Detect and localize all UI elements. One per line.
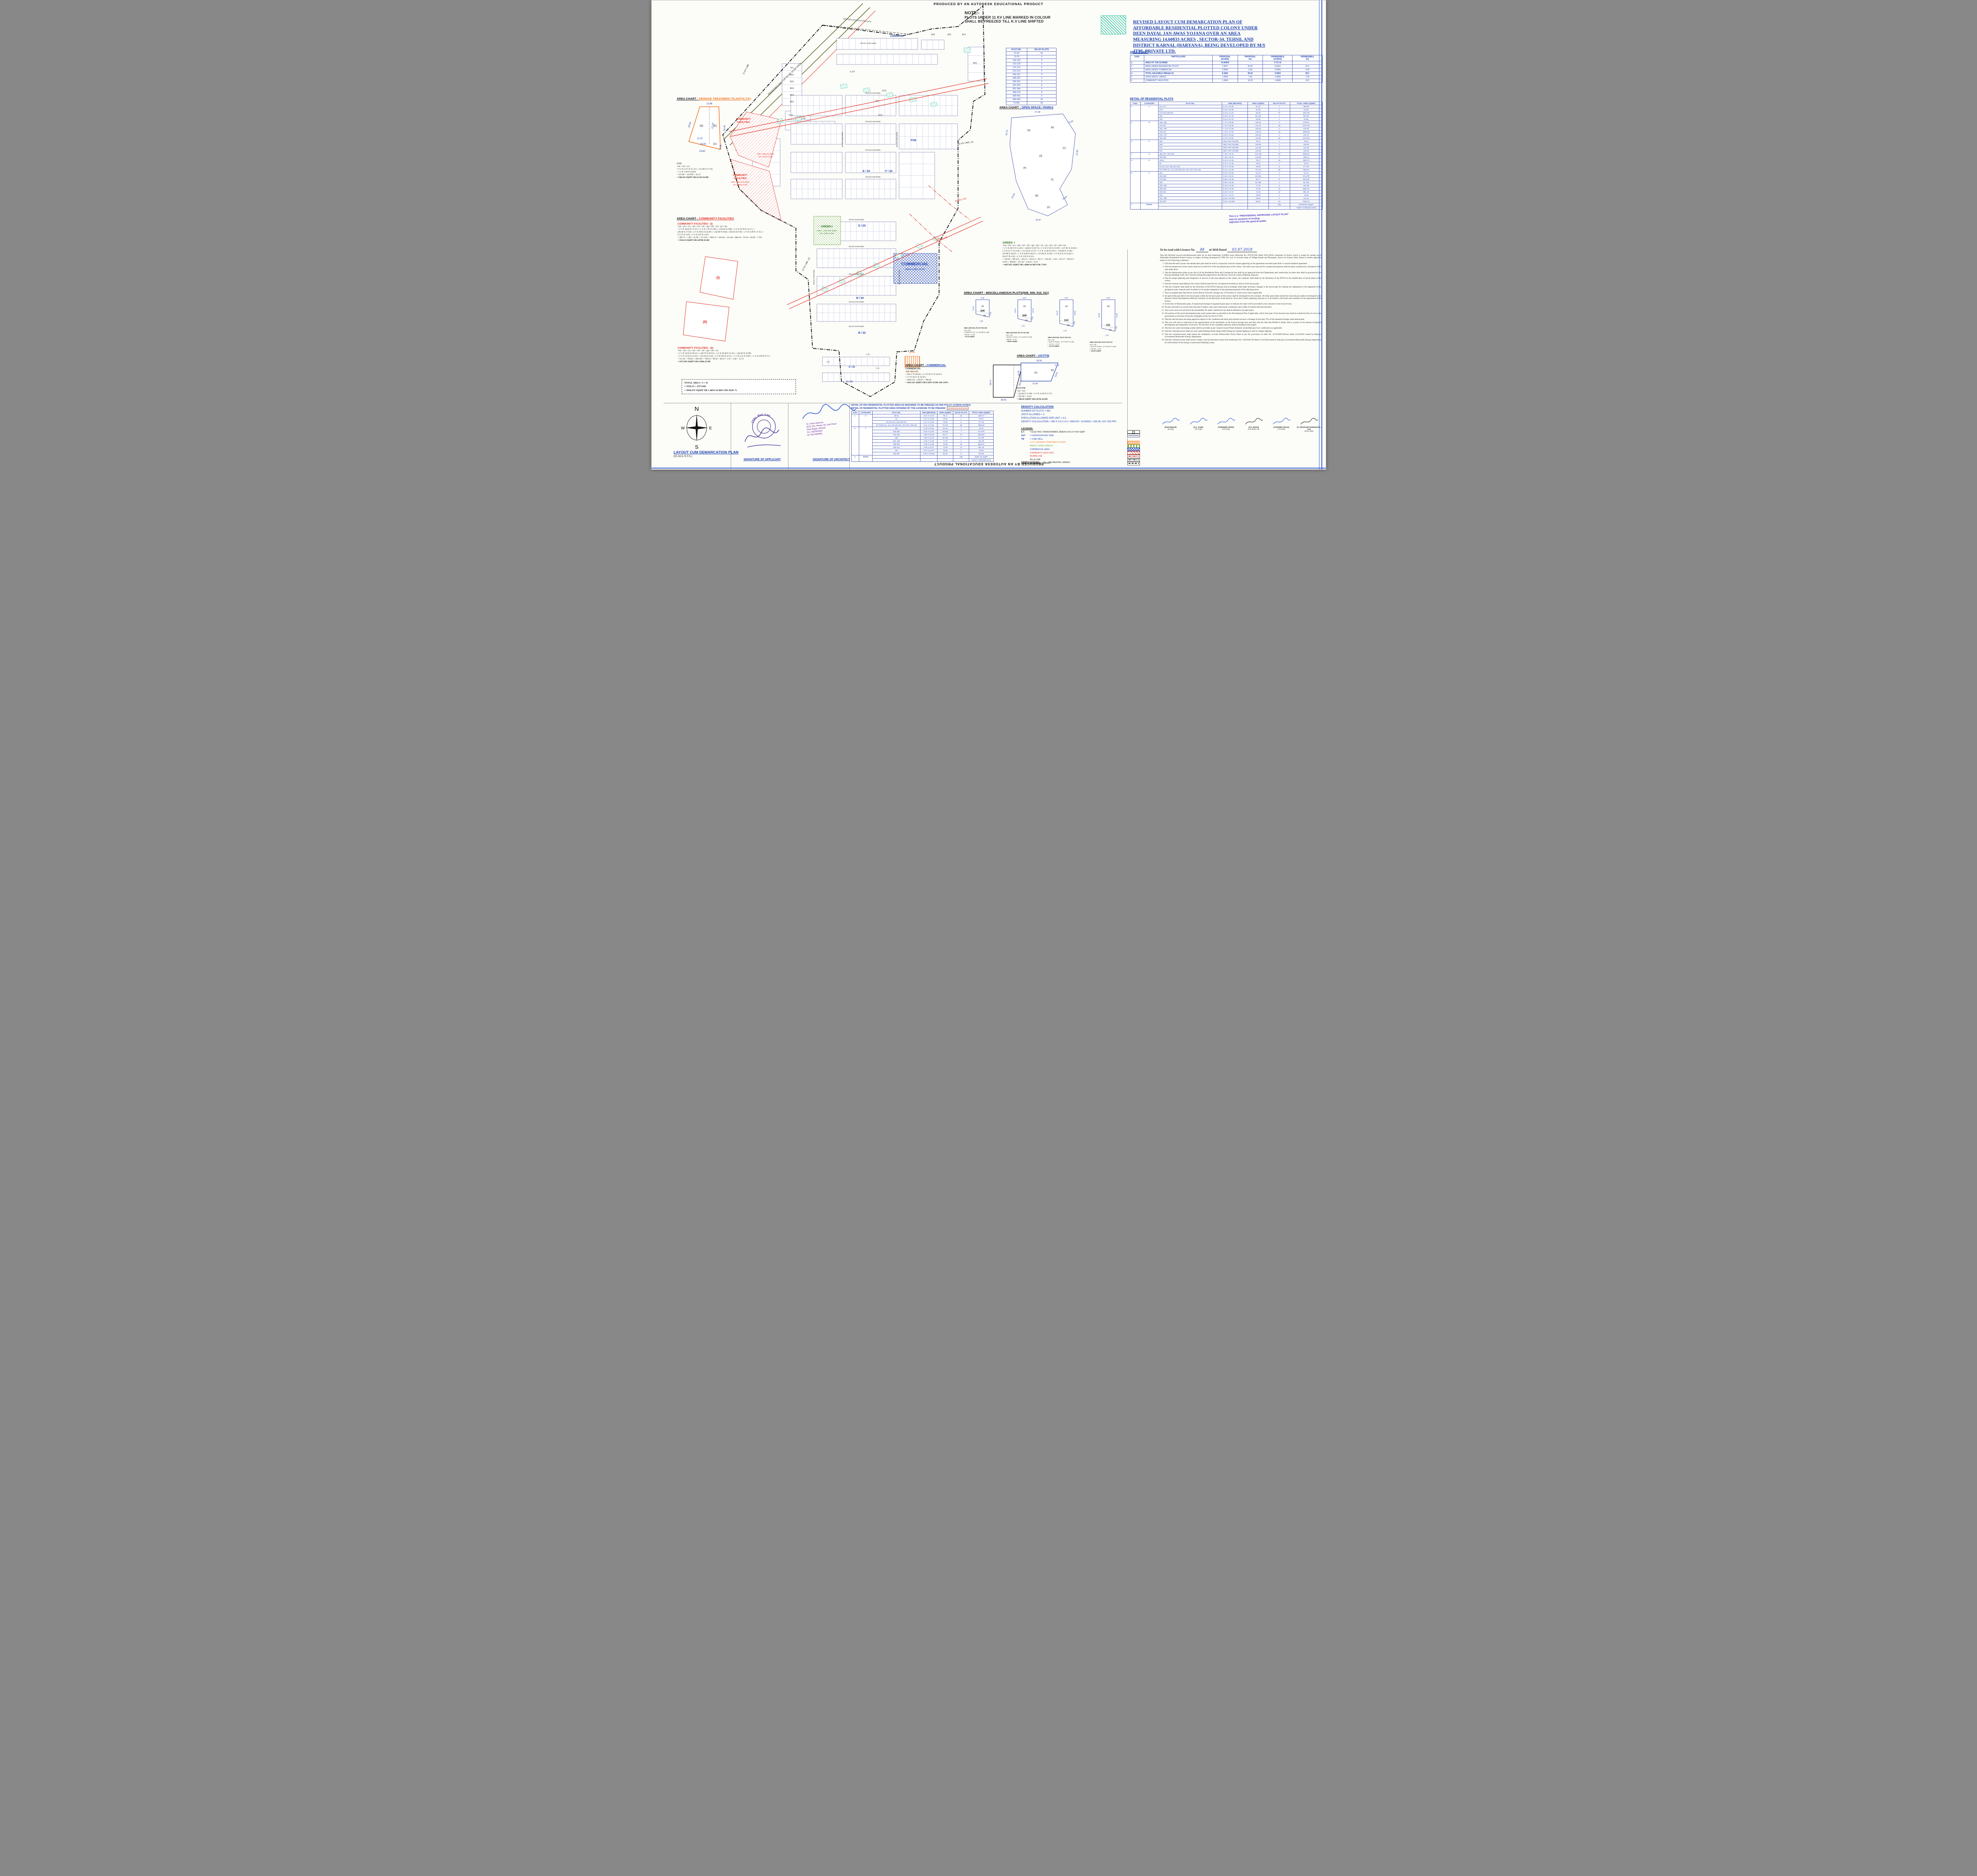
- osp-chart: AREA CHART - OPEN SPACE / PARKS 27.39 20…: [1000, 106, 1098, 226]
- misc-plot-detail: AREA DETAIL-PLOT NO.511=(a) + (b)= (6.87…: [1090, 341, 1128, 352]
- table-cell: 1543.09: [969, 433, 993, 436]
- table-row: 123-1253: [1006, 62, 1056, 66]
- table-cell: 5.10 X 10.62: [1222, 172, 1248, 175]
- sno-cell: 2.: [1130, 121, 1140, 140]
- detail-line: = 123.18 SQMT: [1048, 345, 1087, 348]
- table-cell: 77.19: [1247, 184, 1268, 187]
- plot-number: 511: [1106, 324, 1110, 327]
- freeze-detail-title-2: DETAIL OF RESIDENTIAL PLOTTED AREA OFFER…: [851, 406, 1017, 410]
- note-title: NOTE:-: [965, 11, 1097, 15]
- legend-abbr: UGT: [1021, 435, 1030, 437]
- table-row: 4935.35 X 11.3360.615160.615: [1130, 115, 1322, 118]
- table-cell: 3: [1027, 55, 1056, 59]
- green1-title: GREEN- I: [1003, 242, 1129, 244]
- table-cell: 128.10: [1247, 130, 1268, 134]
- svg-text:E: E: [709, 426, 712, 431]
- table-cell: 330-341: [873, 446, 920, 449]
- table-row: 235-2373: [1006, 73, 1056, 77]
- svg-text:11.68: 11.68: [706, 103, 712, 105]
- plot-shape: [1060, 300, 1073, 327]
- table-cell: 3.8023 ACRES(50.03%): [969, 459, 993, 462]
- table-row: 3425.37 X 14.0775.56175.56: [851, 449, 993, 452]
- legend-swatch-comm: [1127, 448, 1140, 451]
- svg-text:24.62: 24.62: [699, 150, 705, 153]
- table-cell: 5.86 X 15.49: [920, 433, 937, 436]
- table-cell: 3: [1027, 77, 1056, 80]
- table-cell: 1250.72: [1290, 159, 1322, 162]
- formula-line: = 167.86 + 316.995 + 63.47: [677, 174, 796, 176]
- table-cell: 5: [953, 452, 969, 455]
- legend-item: KILLA LINE: [1021, 458, 1140, 461]
- table-cell: 478: [1159, 108, 1222, 111]
- formula-line: 54.95 + 496.08 + 107.38 + 154.65 + 9.23: [1003, 261, 1129, 264]
- table-cell: 20: [1268, 137, 1290, 140]
- table-cell: 1: [1268, 172, 1290, 175]
- table-cell: 2: [1268, 127, 1290, 130]
- dim-label: 6.87: [1064, 297, 1068, 299]
- category-cell: C: [1140, 140, 1159, 153]
- residential-detail-heading: DETAIL OF RESIDENTIAL PLOTS: [1130, 98, 1174, 100]
- misc-plot-diagram: 6.8713.0116.297.613.28509(a)(b): [1006, 296, 1045, 330]
- svg-text:(c): (c): [713, 143, 716, 145]
- table-cell: 63,112-113, 182,223-224: [1159, 165, 1222, 168]
- table-cell: 450-469: [1159, 137, 1222, 140]
- table-cell: 44: [1268, 200, 1290, 203]
- produced-by-bottom: PRODUCED BY AN AUTODESK EDUCATIONAL PROD…: [652, 462, 1326, 466]
- formula-line: (24.47 X 6.32) + ( ½ X 2.92 X 6.32 ): [1003, 255, 1129, 258]
- category-cell: E: [1140, 159, 1159, 172]
- table-cell: 1: [1268, 118, 1290, 121]
- table-cell: [1247, 206, 1268, 210]
- table-cell: 7.32 X 18.00: [1222, 124, 1248, 127]
- legend-item: S.T.P. (SEWAGE TREATMENT PLANT): [1021, 441, 1140, 444]
- table-row: 294, 3295.49 X 14.0677.192154.38: [851, 440, 993, 443]
- legend-swatch-et: [1127, 430, 1140, 434]
- table-cell: 2: [1268, 121, 1290, 124]
- table-row: 3.AREA UNDER COMMERCIAL0.58353.990.58434…: [1130, 68, 1322, 72]
- table-cell: 2559.51: [1290, 153, 1322, 156]
- column-header: SIZE (METERS): [920, 411, 937, 414]
- condition-item: No plot will derive an access from less …: [1165, 306, 1321, 308]
- table-cell: 511: [1159, 149, 1222, 153]
- table-row: 330-3415.28 X 14.0774.2912891.48: [1130, 191, 1322, 194]
- table-cell: 3: [1027, 73, 1056, 77]
- table-cell: 5.47 X 14.55: [920, 421, 937, 424]
- table-cell: 2305.80: [1290, 130, 1322, 134]
- table-row: 263-2695.04 X 10.6253.5257374.675: [851, 430, 993, 433]
- table-cell: 1627.56: [1290, 111, 1322, 115]
- plan-label: AREA-0.5835 ACRE: [905, 268, 924, 271]
- column-header: AREA (SQMT): [1247, 102, 1268, 105]
- part-b-label: (b): [983, 315, 985, 317]
- table-cell: -: [1293, 61, 1322, 65]
- table-cell: 1: [1268, 140, 1290, 143]
- signature-stroke: [1246, 418, 1263, 424]
- table-cell: 471-477: [1159, 105, 1222, 108]
- table-cell: 34: [1268, 187, 1290, 191]
- plot-shape: [976, 300, 989, 317]
- condition-item: That the demarcation plans as per site o…: [1165, 272, 1321, 277]
- svg-text:57.65: 57.65: [1076, 150, 1079, 155]
- table-cell: [1247, 203, 1268, 206]
- table-cell: 5.10 X 10.62: [920, 427, 937, 430]
- north-compass: N W E S: [681, 405, 713, 450]
- svg-text:11.69: 11.69: [1018, 370, 1020, 376]
- plan-label: AREA-2373.945 SQMT: [731, 181, 750, 183]
- table-row: 1.E46-615.41 X 14.4578.17161250.72: [851, 414, 993, 418]
- table-cell: 142.195: [1247, 153, 1268, 156]
- formula-line: TOTAL AREA = I + II: [684, 381, 793, 385]
- licence-no-handwritten: 48: [1196, 248, 1208, 252]
- table-row: 63,112-113, 182,223-2245.47 X 14.5579.59…: [851, 421, 993, 424]
- plan-label: AREA = 4437.055 SQMT: [817, 230, 837, 232]
- formula-line: = 300.43 SQMT OR 0.0742 ACRE: [1017, 398, 1084, 401]
- approver-title: STP (E&V) HR: [1240, 428, 1268, 430]
- freeze-detail-table: S.NO.CATEGORYPLOT NO.SIZE (METERS)AREA (…: [851, 411, 994, 462]
- legend-label: COMMUNITY FACILITIES: [1030, 452, 1126, 454]
- table-cell: [1268, 206, 1290, 210]
- area-chart-heading: AREA CHART: [1130, 51, 1148, 54]
- svg-text:(a): (a): [699, 125, 703, 127]
- header-text: (%): [1293, 58, 1321, 60]
- stp-chart-title: AREA CHART -: [677, 97, 699, 100]
- table-cell: 1.4654: [1212, 79, 1238, 83]
- table-cell: 123.18: [1247, 146, 1268, 149]
- table-cell: 342: [873, 449, 920, 452]
- plan-label: (II): [703, 320, 707, 324]
- approver-signature: [1244, 418, 1264, 426]
- table-cell: 263-269: [873, 430, 920, 433]
- residential-detail-table: S.NO.CATEGORYPLOT NO.SIZE (METERS)AREA (…: [1130, 102, 1323, 210]
- plan-label: A1/1: [962, 34, 966, 36]
- table-cell: 1: [1268, 115, 1290, 118]
- approver: (JITENDER SIHAG)CTP (HR): [1268, 418, 1295, 432]
- freezed-plot-patch: [916, 244, 922, 249]
- table-cell: 3.99: [1238, 68, 1263, 72]
- note-line-2: SHALL BE FREEZED TILL K.V LINE SHIFTED: [965, 19, 1097, 23]
- table-row: 64-79,96-111, 114-129,166-181, 207-222, …: [1130, 168, 1322, 172]
- table-row: 2935.99 X 15.4992.785192.785: [851, 436, 993, 440]
- stp-chart: AREA CHART - SEWAGE TREATMENT PLANT(S.T.…: [677, 97, 796, 179]
- table-cell: 78.715: [937, 424, 953, 427]
- table-cell: 75.56: [937, 449, 953, 452]
- plan-label: S.T.P.: [909, 351, 915, 354]
- table-row: 363-3675.04 X 10.91555.015275.05: [851, 452, 993, 455]
- condition-item: At the time of demarcation plan, if requ…: [1165, 303, 1321, 305]
- table-cell: 5.99 X 15.49: [1222, 181, 1248, 184]
- table-cell: 344-387: [1159, 200, 1222, 203]
- table-cell: -: [1238, 61, 1263, 65]
- table-cell: 3: [1027, 62, 1056, 66]
- cf-chart-heading: AREA CHART - COMMUNITY FACILITIES: [677, 217, 807, 220]
- column-header: NO.OF PLOTS: [1268, 102, 1290, 105]
- table-cell: 60.28: [1247, 111, 1268, 115]
- plan-title-block: LAYOUT CUM DEMARCATION PLAN (SCALE-N.T.S…: [674, 450, 753, 458]
- stp-shape-diagram: 11.68 29.82 27.14 32.42 12.37 24.04 24.6…: [677, 100, 768, 160]
- table-row: 3425.37 X 14.0775.56175.56: [1130, 194, 1322, 197]
- signature-stroke: [1190, 418, 1207, 424]
- table-row: 2935.99 X 15.4992.785192.785: [1130, 181, 1322, 184]
- table-cell: 142.58: [1247, 156, 1268, 159]
- table-cell: 1250.72: [969, 414, 993, 418]
- table-cell: 449, 470: [1159, 134, 1222, 137]
- legend-label: COMMERCIAL AREA: [1030, 448, 1126, 451]
- table-cell: 52.03: [1238, 65, 1263, 68]
- table-cell: SEE THE FIGURE: [1222, 140, 1248, 143]
- table-header-row: S.NO.CATEGORYPLOT NO.SIZE (METERS)AREA (…: [851, 411, 993, 414]
- table-cell: 96: [953, 424, 969, 427]
- table-cell: 359.80: [1290, 105, 1322, 108]
- dim-label: 13.01: [972, 306, 974, 311]
- approver-signature: [1216, 418, 1236, 426]
- table-cell: 12: [1268, 191, 1290, 194]
- title-line: REVISED LAYOUT CUM DEMARCATION PLAN OF: [1133, 19, 1283, 25]
- formula-line: + ( ½ X 14.56 X 12.44 ) + (14.56 X 4.54)…: [678, 355, 808, 358]
- table-cell: 123-125: [1006, 62, 1027, 66]
- table-cell: 47-62: [1006, 52, 1027, 55]
- abbreviations-title: ABBREVIATIONS:: [1021, 461, 1040, 464]
- table-cell: [1159, 203, 1222, 206]
- svg-text:32.42: 32.42: [723, 125, 726, 131]
- applicant-signature: [745, 428, 779, 442]
- produced-by-top: PRODUCED BY AN AUTODESK EDUCATIONAL PROD…: [652, 2, 1326, 6]
- table-cell: 270.90: [1290, 127, 1322, 130]
- drawing-title-block: REVISED LAYOUT CUM DEMARCATION PLAN OFAF…: [1133, 19, 1283, 54]
- plan-label: A6/1: [973, 62, 977, 64]
- table-cell: 322-324: [1006, 84, 1027, 87]
- approver-title: JD (HQ): [1157, 428, 1185, 430]
- table-cell: 3: [1027, 80, 1056, 84]
- formula-line: = 112.30 + 794.92 + 499.105 + 790.93 + 9…: [678, 358, 808, 361]
- signature-stroke: [1301, 418, 1318, 424]
- plan-label: ROAD 9.0M WIDE: [841, 132, 843, 147]
- table-cell: 374.675: [969, 430, 993, 433]
- table-row: 7.TOTAL36330758.915 SQMT: [1130, 203, 1322, 206]
- table-cell: 7.50: [1293, 76, 1322, 79]
- freezed-plot-patch: [964, 48, 970, 53]
- table-row: 295-3285.36 X 14.0675.36342562.24: [851, 443, 993, 446]
- table-cell: 1: [1268, 146, 1290, 149]
- dim-label: 22.84: [1116, 313, 1118, 318]
- column-header: NO.OF PLOTS: [1027, 48, 1056, 52]
- formula-line: = ( ½ X 18.02 X 31.16 ) + ( ½ X 1.35 X 2…: [678, 228, 808, 231]
- table-cell: 5 TO 15: [1263, 61, 1293, 65]
- table-cell: 276-292: [1159, 178, 1222, 181]
- table-row: 343, 3885.09 X 10.91555.562111.12: [1130, 197, 1322, 200]
- table-cell: 5.28 X 14.07: [1222, 191, 1248, 194]
- plan-label: B / 20: [856, 297, 864, 300]
- table-cell: 6.62 X 16.52: [1222, 134, 1248, 137]
- table-row: 409-42315: [1006, 98, 1056, 102]
- conditions-list: That this Revised Layout-cum-demarcation…: [1160, 263, 1321, 344]
- plan-label: B/1: [790, 67, 794, 69]
- table-row: 625.47 X 14.4579.04179.04: [851, 418, 993, 421]
- table-cell: 46-61: [873, 414, 920, 418]
- table-cell: 2371.68: [1290, 124, 1322, 127]
- table-cell: 1: [953, 436, 969, 440]
- column-header: PROPOSAL(ACRES): [1212, 55, 1238, 61]
- sno-cell: 6.: [1130, 172, 1140, 203]
- table-cell: 5.28 X 14.07: [920, 446, 937, 449]
- table-cell: 275.05: [969, 452, 993, 455]
- table-cell: [1222, 206, 1248, 210]
- table-cell: 7556.64: [969, 424, 993, 427]
- condition-item: That the odd size plots are being approv…: [1165, 318, 1321, 321]
- green1-block: GREEN- I =(a) + (b) + (c) + (d) + (e) + …: [1003, 242, 1129, 266]
- plan-label: OR 0.5866 ACRE: [733, 184, 747, 186]
- plan-label: A / 14: [846, 381, 852, 383]
- plan-label: E / 34: [862, 170, 869, 173]
- table-cell: 5.18 X 10.00: [1222, 108, 1248, 111]
- ugt-shape-diagram: 28.56 11.69 5.72 13.01 22.84 (a)(b): [1017, 357, 1064, 385]
- commercial-formula: COMMERCIAL=(a) + (b) + (c)= (56.17 X 28.…: [905, 368, 985, 384]
- table-row: 4.TOTAL SALEABLE AREA(2+3)8.184256.029.4…: [1130, 72, 1322, 76]
- column-header: S.NO.: [1130, 102, 1140, 105]
- formula-line: =(a) + (b) + (c) + (d) + (e) + (f) + (g)…: [678, 350, 808, 352]
- table-cell: 5.49 X 14.06: [920, 440, 937, 443]
- cf1-formula: =(a) + (b) + (c) + (d) + (e) + (f) + (g)…: [678, 225, 808, 242]
- table-cell: 3: [1027, 84, 1056, 87]
- dim-label: 16.29: [1056, 311, 1058, 316]
- table-row: 285-2873: [1006, 77, 1056, 80]
- table-cell: 508: [1159, 140, 1222, 143]
- area-chart-table: S.NO.PARTICULARSPROPOSAL(ACRES)PROPOSAL(…: [1130, 55, 1323, 83]
- table-row: 276-2925.86 X 15.4990.77171543.09: [851, 433, 993, 436]
- legend-abbr: TW: [1021, 438, 1030, 440]
- table-cell: 5.37 X 14.07: [920, 449, 937, 452]
- cf2-formula: =(a) + (b) + (c) + (d) + (e) + (f) + (g)…: [678, 350, 808, 363]
- note-freeze-swatch: [1101, 15, 1126, 34]
- legend-swatch-cf: [1127, 451, 1140, 455]
- plan-label: ROAD 9.0M WIDE: [849, 301, 864, 303]
- note-block: NOTE:- PLOTS UNDER 11 KV LINE MARKED IN …: [965, 11, 1097, 23]
- table-cell: 15: [1027, 98, 1056, 102]
- plan-label: 11 KV LINE -(2): [801, 257, 811, 272]
- dim-label: 13.01: [1014, 308, 1016, 313]
- table-row: 2.B409, 4287.74 X 18.00139.322278.64: [1130, 121, 1322, 124]
- table-cell: 7.74 X 18.00: [1222, 121, 1248, 124]
- plan-label: L.G.: [876, 367, 879, 370]
- table-cell: 63.56: [1247, 118, 1268, 121]
- table-row: 1.A471-4775.14 X 10.0051.407359.80: [1130, 105, 1322, 108]
- table-cell: 479-492,495-507: [1159, 111, 1222, 115]
- table-cell: 295-328: [873, 443, 920, 446]
- formula-line: = 1604.215 + 458.91 + 298.40: [905, 379, 985, 382]
- approver: (RAM MEHAR)JD (HQ): [1157, 418, 1185, 432]
- table-cell: 4: [1027, 87, 1056, 91]
- condition-item: That no property/plot shall derive acces…: [1165, 292, 1321, 294]
- table-cell: 409-423: [1006, 98, 1027, 102]
- cf1-title: COMMUNITY FACILITIES - (I): [678, 223, 808, 225]
- condition-item: All green belts provided in the layout p…: [1165, 295, 1321, 302]
- table-row: 2.AREA UNDER RESIDENTIAL PLOTS7.600752.0…: [1130, 65, 1322, 68]
- cf1-block: COMMUNITY FACILITIES - (I) =(a) + (b) + …: [678, 223, 808, 242]
- formula-line: = 3556.53 SQMT OR 0.8788 ACRE: [678, 239, 808, 242]
- table-cell: 2: [1268, 134, 1290, 137]
- table-cell: [873, 455, 920, 459]
- table-cell: 1: [1268, 181, 1290, 184]
- table-cell: 429, 448: [1159, 127, 1222, 130]
- table-cell: 5.: [1130, 76, 1144, 79]
- approver-signature: [1189, 418, 1208, 426]
- signature-stroke: [1218, 418, 1235, 424]
- legend-label: KILLA LINE: [1030, 459, 1126, 461]
- table-row: 73-753: [1006, 55, 1056, 59]
- table-header-row: S.NO.PARTICULARSPROPOSAL(ACRES)PROPOSAL(…: [1130, 55, 1322, 61]
- table-cell: 90.77: [937, 433, 953, 436]
- category-cell: F: [859, 427, 873, 455]
- formula-line: (17.55 X 3.65) + ( ½ X 4.03 X 3.65 ): [678, 234, 808, 236]
- table-cell: 131.76: [1247, 124, 1268, 127]
- table-cell: 51.40: [1247, 105, 1268, 108]
- table-cell: 343, 388: [1159, 197, 1222, 200]
- dim-label: 3.28: [1072, 321, 1075, 325]
- header-text: (ACRES): [1213, 58, 1237, 60]
- table-cell: 16: [1027, 52, 1056, 55]
- table-cell: 10.03: [1238, 79, 1263, 83]
- table-cell: 5.36 X 14.06: [920, 443, 937, 446]
- table-cell: 2.: [1130, 65, 1144, 68]
- green1-formula: =(a) + (b) + (c) + (d) + (e) + (f) + (g)…: [1003, 244, 1129, 266]
- table-cell: 170-172: [1006, 66, 1027, 70]
- table-cell: 1: [953, 418, 969, 421]
- plan-label: I.G.: [826, 361, 830, 363]
- category-cell: A: [1140, 105, 1159, 121]
- column-header: CATEGORY: [1140, 102, 1159, 105]
- table-cell: 7.32 X 17.50: [1222, 130, 1248, 134]
- table-cell: 2: [1268, 184, 1290, 187]
- abbreviations-block: ABBREVIATIONS: I.G. - INCIDENTAL GREEN: [1021, 461, 1140, 464]
- table-cell: 2: [953, 440, 969, 443]
- plan-label: ROAD 9.0M WIDE: [849, 246, 864, 247]
- table-cell: 285-287: [1006, 77, 1027, 80]
- applicant-stamp: JTPL Pvt. Ltd.: [739, 407, 787, 451]
- plan-label: E 2/2: [850, 71, 855, 73]
- plan-label: COMMERCIAL: [901, 262, 928, 266]
- table-cell: 75.56: [969, 449, 993, 452]
- table-cell: 509: [1159, 143, 1222, 146]
- table-cell: 100.65: [1247, 143, 1268, 146]
- table-cell: 235-237: [1006, 73, 1027, 77]
- table-row: 263-2695.04 X 10.6253.5257374.675: [1130, 175, 1322, 178]
- table-cell: 64-79,96-111, 114-129,166-181, 207-222, …: [873, 424, 920, 427]
- table-cell: 210-213: [1006, 70, 1027, 73]
- table-cell: 92.785: [1290, 181, 1322, 184]
- table-cell: 154.38: [1290, 184, 1322, 187]
- table-cell: [1222, 203, 1248, 206]
- approver-signature: [1161, 418, 1181, 426]
- table-cell: 18: [1268, 130, 1290, 134]
- signature-stroke: [1273, 418, 1290, 424]
- table-cell: 109.36: [1247, 134, 1268, 137]
- column-header: PLOT NO.: [1159, 102, 1222, 105]
- legend-item: TW= TUBE WELL: [1021, 438, 1140, 441]
- legend-label: MURBA LINE: [1030, 455, 1126, 457]
- freeze-detail-block: DETAIL OF 50% RESIDENTIAL PLOTTED AREA A…: [851, 404, 1017, 462]
- legend-item: UGT= UNDERGROUND TANK: [1021, 434, 1140, 437]
- table-cell: 891.48: [969, 446, 993, 449]
- table-cell: 368-370: [1006, 91, 1027, 94]
- title-line: DEEN DAYAL JAN AWAS YOJANA OVER AN AREA: [1133, 31, 1283, 37]
- plan-label: ROAD 9.0M WIDE: [849, 273, 864, 275]
- sno-cell: 3.: [851, 455, 859, 462]
- formula-line: DENSITY CALCULATION = 363 X 4.5 X 3.0 = …: [1021, 420, 1140, 424]
- table-row: 510SEE THE FIGURE123.181123.18: [1130, 146, 1322, 149]
- approver-signature: [1272, 418, 1291, 426]
- plan-label: ROAD 12.0M WIDE: [860, 42, 876, 44]
- condition-item: That for proper planning and integration…: [1165, 277, 1321, 282]
- table-cell: 1.4608: [1263, 79, 1293, 83]
